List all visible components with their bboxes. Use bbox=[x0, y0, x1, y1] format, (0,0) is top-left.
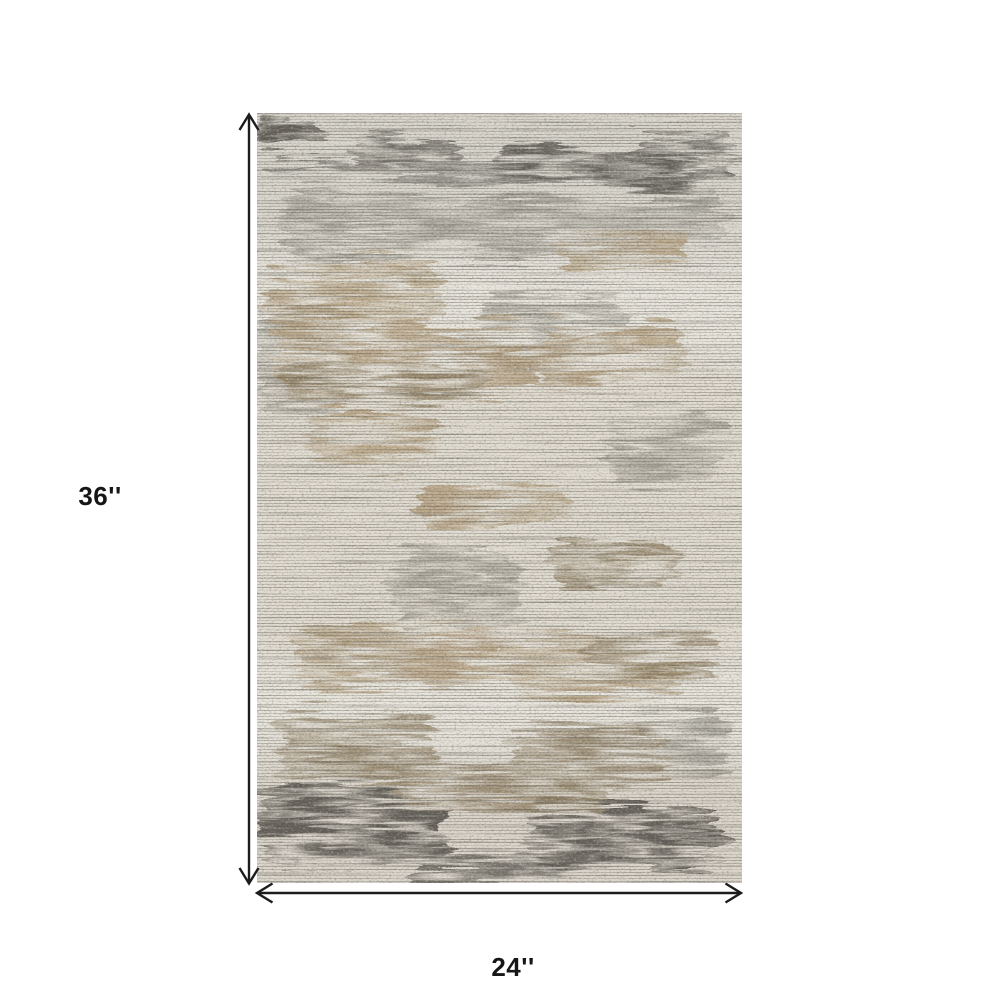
arrowhead-left-icon bbox=[257, 884, 273, 903]
height-dimension-label: 36'' bbox=[60, 483, 140, 509]
height-dimension-arrow bbox=[240, 115, 259, 884]
product-dimension-diagram: 36'' 24'' bbox=[0, 0, 1000, 1000]
arrowhead-down-icon bbox=[240, 868, 259, 884]
width-dimension-arrow bbox=[257, 884, 741, 903]
width-dimension-label: 24'' bbox=[473, 954, 553, 980]
arrowhead-right-icon bbox=[726, 884, 742, 903]
rug-texture bbox=[257, 113, 742, 883]
arrowhead-up-icon bbox=[240, 115, 259, 131]
rug-grain-light bbox=[257, 113, 742, 883]
rug-image bbox=[257, 113, 742, 883]
